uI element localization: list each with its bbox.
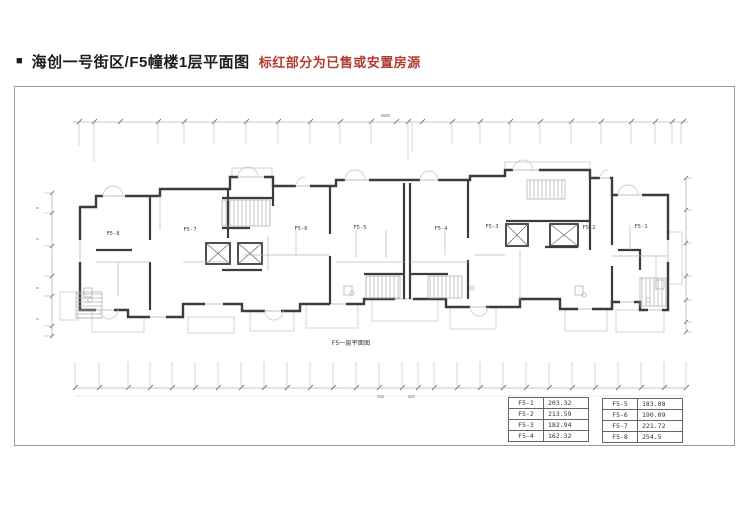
table-row: F5-8 254.5 [603,432,683,443]
floor-plan-canvas: F5-8 F5-7 F5-6 F5-5 F5-4 F5-3 F5-2 F5-1 … [0,0,750,530]
table-row: F5-3 182.94 [509,420,589,431]
table-row: F5-5 183.08 [603,399,683,410]
unit-label: F5-2 [582,225,595,231]
area-cell: 182.94 [544,420,589,431]
plan-caption: F5一层平面图 [332,340,370,347]
unit-label: F5-5 [353,225,366,231]
area-cell: 254.5 [638,432,683,443]
unit-label: F5-6 [294,226,307,232]
unit-label: F5-4 [434,226,448,232]
area-cell: 162.32 [544,431,589,442]
unit-cell: F5-1 [509,398,544,409]
elevator-icon [506,224,528,246]
unit-label: F5-1 [634,224,647,230]
area-cell: 203.32 [544,398,589,409]
unit-cell: F5-6 [603,410,638,421]
elevator-icon [238,243,262,264]
area-table-left: F5-1 203.32 F5-2 213.59 F5-3 182.94 F5-4… [508,397,589,442]
area-cell: 190.09 [638,410,683,421]
stair-icon [76,292,102,318]
stair-icon [640,278,666,306]
stair-icon [527,180,565,199]
stair-icon [428,276,462,298]
stair-icon [222,200,270,226]
unit-label: F5-7 [183,227,196,233]
table-row: F5-2 213.59 [509,409,589,420]
table-row: F5-6 190.09 [603,410,683,421]
area-cell: 213.59 [544,409,589,420]
table-row: F5-7 221.72 [603,421,683,432]
unit-cell: F5-2 [509,409,544,420]
unit-label: F5-8 [106,231,119,237]
table-row: F5-4 162.32 [509,431,589,442]
area-cell: 221.72 [638,421,683,432]
unit-cell: F5-8 [603,432,638,443]
unit-label: F5-3 [485,224,498,230]
stair-icon [366,276,400,298]
area-table-right: F5-5 183.08 F5-6 190.09 F5-7 221.72 F5-8… [602,398,683,443]
unit-cell: F5-7 [603,421,638,432]
elevator-icon [550,224,578,246]
table-row: F5-1 203.32 [509,398,589,409]
elevator-icon [206,243,230,264]
unit-cell: F5-5 [603,399,638,410]
unit-cell: F5-4 [509,431,544,442]
area-cell: 183.08 [638,399,683,410]
unit-cell: F5-3 [509,420,544,431]
